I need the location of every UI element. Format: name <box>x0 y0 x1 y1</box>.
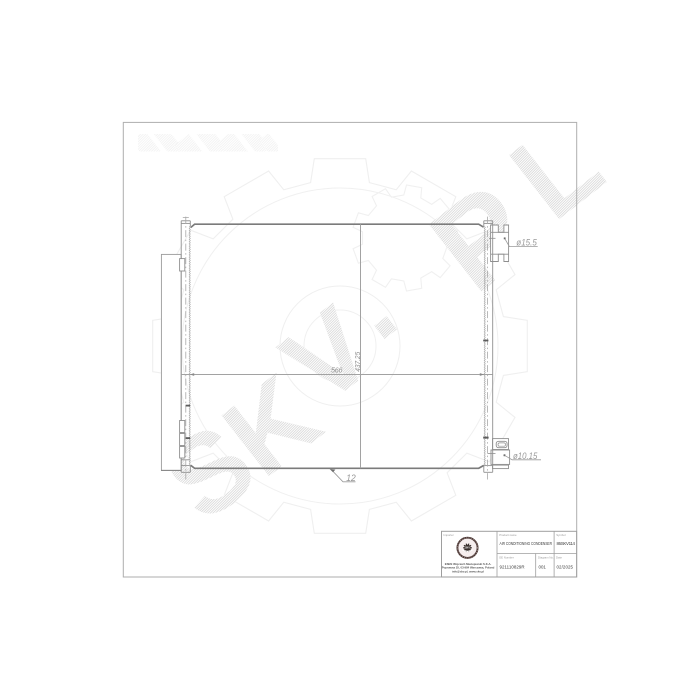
svg-text:OE Number: OE Number <box>499 556 514 560</box>
svg-text:86SKV114: 86SKV114 <box>557 541 576 546</box>
svg-text:02/2025: 02/2025 <box>557 565 574 570</box>
svg-text:921110829R: 921110829R <box>500 565 525 570</box>
svg-text:001: 001 <box>539 565 547 570</box>
svg-text:Diagram No.: Diagram No. <box>538 556 554 560</box>
svg-text:Importer: Importer <box>443 533 453 537</box>
svg-text:566: 566 <box>331 366 343 375</box>
svg-text:Product name: Product name <box>499 533 517 537</box>
svg-text:437.25: 437.25 <box>353 351 362 372</box>
svg-text:Symbol: Symbol <box>556 533 566 537</box>
svg-text:ø10.15: ø10.15 <box>513 451 538 462</box>
svg-text:Date: Date <box>556 556 562 560</box>
svg-text:SKV: SKV <box>465 548 470 550</box>
svg-text:AIR CONDITIONING CONDENSER: AIR CONDITIONING CONDENSER <box>500 541 553 546</box>
svg-text:12: 12 <box>346 473 356 484</box>
svg-text:ø15.5: ø15.5 <box>516 237 537 248</box>
svg-text:info@skv.pl, www.skv.pl: info@skv.pl, www.skv.pl <box>452 569 484 573</box>
